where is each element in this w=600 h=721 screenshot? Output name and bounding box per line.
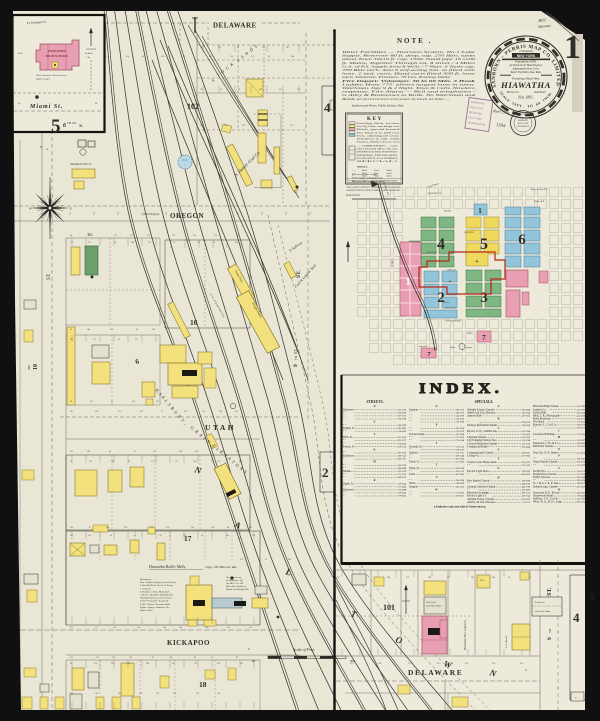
svg-text:B: B (498, 418, 500, 421)
svg-text:186: 186 (95, 693, 98, 695)
svg-text:309: 309 (217, 663, 220, 665)
svg-text:OREGON: OREGON (170, 212, 204, 220)
svg-text:383: 383 (70, 339, 73, 341)
svg-text:" ": " " (343, 476, 346, 479)
svg-text:Windows in side walls: Windows in side walls (357, 139, 400, 141)
svg-text:Nov. 1891.: Nov. 1891. (517, 96, 534, 100)
svg-text:DELAWARE: DELAWARE (213, 22, 257, 30)
svg-text:363: 363 (113, 627, 116, 629)
svg-text:NEW YORK: NEW YORK (517, 54, 536, 58)
svg-text:258: 258 (166, 527, 169, 529)
svg-text:43: 43 (136, 329, 138, 331)
svg-text:Junction: Junction (419, 345, 427, 348)
svg-text:College St.: College St. (467, 455, 480, 458)
svg-text:257: 257 (200, 89, 203, 91)
svg-text:326: 326 (127, 663, 130, 665)
svg-text:R: R (374, 479, 376, 482)
svg-text:Wirts, W. A., & Co., Lum: Wirts, W. A., & Co., Lum (533, 501, 562, 504)
svg-text:56: 56 (70, 401, 72, 403)
svg-text:59: 59 (70, 663, 72, 665)
svg-text:1 In.: 1 In. (86, 57, 91, 59)
svg-text:OPENINGS & SIDE SHUTTERS:: OPENINGS & SIDE SHUTTERS: (357, 152, 399, 154)
svg-text:170: 170 (194, 663, 197, 665)
svg-text:95: 95 (111, 401, 113, 403)
svg-text:308: 308 (179, 451, 182, 453)
svg-text:53: 53 (220, 89, 222, 91)
svg-text:T: T (436, 464, 438, 467)
svg-text:h: h (525, 668, 527, 672)
svg-text:Brown Co.: Brown Co. (507, 90, 520, 94)
svg-text:282: 282 (172, 663, 175, 665)
svg-text:Stone: Stone (374, 170, 379, 172)
svg-text:1: 1 (564, 29, 581, 66)
svg-text:a Indicates only one side of: a Indicates only one side of Street show… (434, 505, 487, 509)
svg-text:54: 54 (213, 242, 215, 244)
svg-text:107: 107 (112, 657, 115, 659)
svg-text:5: 5 (377, 326, 378, 328)
svg-text:76: 76 (70, 461, 72, 463)
svg-text:329: 329 (240, 559, 243, 561)
svg-text:112: 112 (447, 577, 450, 579)
svg-text:STREETS.: STREETS. (366, 400, 383, 404)
svg-text:155: 155 (118, 411, 121, 413)
svg-text:W: W (435, 488, 438, 491)
svg-text:Brick, special hazard: Brick, special hazard (357, 129, 402, 131)
svg-text:ST.: ST. (293, 349, 298, 354)
svg-text:106: 106 (252, 535, 255, 537)
svg-text:73: 73 (134, 451, 136, 453)
svg-text:of feet.: of feet. (466, 346, 473, 349)
svg-text:306: 306 (237, 235, 240, 237)
svg-text:5: 5 (513, 338, 514, 340)
svg-text:5: 5 (389, 218, 390, 220)
svg-text:POTTAWATOMIE: POTTAWATOMIE (444, 320, 462, 323)
svg-text:MIAMI: MIAMI (443, 210, 451, 213)
svg-text:324: 324 (161, 56, 164, 58)
svg-text:" ": " " (343, 495, 346, 498)
svg-text:204: 204 (70, 527, 73, 529)
svg-text:178: 178 (336, 577, 339, 579)
svg-text:252: 252 (251, 56, 254, 58)
svg-text:3: 3 (480, 290, 488, 306)
svg-text:69: 69 (268, 56, 270, 58)
svg-text:344: 344 (288, 559, 291, 561)
svg-text:..: .. (184, 162, 186, 166)
svg-text:175: 175 (70, 242, 73, 244)
svg-text:115: 115 (200, 125, 203, 127)
svg-text:103: 103 (191, 527, 194, 529)
svg-text:Standard Oil Co.: Standard Oil Co. (70, 162, 92, 166)
svg-text:H: H (497, 476, 499, 479)
svg-text:Dwelling, Brick, 1st class: Dwelling, Brick, 1st class (357, 122, 400, 125)
svg-text:" ": " " (533, 427, 536, 430)
svg-text:367: 367 (218, 47, 221, 49)
svg-text:193: 193 (239, 461, 242, 463)
svg-text:SHAWNEE: SHAWNEE (464, 231, 475, 234)
svg-text:Salem Evang. Church: Salem Evang. Church (533, 485, 558, 488)
svg-text:4811: 4811 (538, 17, 547, 23)
svg-text:195: 195 (224, 125, 227, 127)
svg-text:Miami St.: Miami St. (29, 104, 63, 110)
svg-text:365: 365 (193, 235, 196, 237)
svg-text:DELAWARE: DELAWARE (408, 668, 463, 677)
svg-text:Negro Baptist Church: Negro Baptist Church (533, 461, 558, 464)
svg-text:341: 341 (70, 411, 73, 413)
svg-text:" ": " " (467, 473, 470, 476)
svg-text:24: 24 (508, 577, 510, 579)
svg-text:158: 158 (88, 535, 91, 537)
svg-text:Houcks, S., Coal Co.: Houcks, S., Coal Co. (533, 424, 556, 427)
svg-text:+: + (475, 259, 479, 265)
svg-text:123: 123 (236, 451, 239, 453)
svg-text:83: 83 (110, 535, 112, 537)
svg-text:47: 47 (118, 339, 120, 341)
svg-text:HIGH SCHOOL: HIGH SCHOOL (45, 54, 68, 58)
svg-text:(Old Oregon): (Old Oregon) (143, 212, 159, 216)
svg-text:Frames, Shutter doors, iron: Frames, Shutter doors, iron (357, 142, 402, 144)
svg-text:" ": " " (343, 430, 346, 433)
svg-text:ST.: ST. (591, 592, 596, 600)
svg-text:Scale of Feet.: Scale of Feet. (346, 194, 361, 197)
svg-text:Utah: Utah (409, 473, 415, 476)
svg-text:UTAH: UTAH (205, 423, 236, 432)
svg-text:First Baptist Church: First Baptist Church (467, 479, 490, 482)
svg-text:Bbls with a. Regular at: Bbls with a. Regular at (226, 585, 247, 588)
svg-text:46: 46 (142, 56, 144, 58)
svg-text:224: 224 (235, 242, 238, 244)
svg-text:K: K (373, 448, 375, 451)
svg-text:322: 322 (202, 411, 205, 413)
svg-text:170: 170 (172, 235, 175, 237)
svg-text:Commercial Hotel: Commercial Hotel (467, 445, 488, 448)
svg-text:Dwell'g Frame and shingle roof: Dwell'g Frame and shingle roof (357, 125, 400, 128)
svg-text:Wm. Pac. R. R. Depot: Wm. Pac. R. R. Depot (533, 451, 558, 454)
svg-text:388: 388 (428, 577, 431, 579)
svg-text:C: C (498, 427, 500, 430)
svg-text:40 Rods: 40 Rods (85, 53, 93, 55)
svg-text:264: 264 (111, 461, 114, 463)
svg-text:298: 298 (111, 663, 114, 665)
svg-text:Adobe: Adobe (386, 169, 392, 172)
svg-text:5: 5 (572, 242, 573, 244)
svg-text:4: 4 (324, 100, 331, 115)
svg-text:E: E (70, 207, 72, 211)
svg-text:City Wells/ Motor: City Wells/ Motor (426, 605, 442, 608)
svg-text:248: 248 (291, 56, 294, 58)
svg-text:230: 230 (193, 461, 196, 463)
svg-text:332: 332 (153, 451, 156, 453)
svg-text:St.: St. (79, 123, 84, 128)
svg-text:191: 191 (184, 411, 187, 413)
svg-text:16: 16 (190, 318, 198, 327)
svg-text:CONSECUTIVE STRUCTURES AND A: CONSECUTIVE STRUCTURES AND ADJOINING. (346, 189, 402, 192)
svg-text:263: 263 (286, 47, 289, 49)
svg-text:318: 318 (230, 56, 233, 58)
svg-text:21: 21 (161, 411, 163, 413)
svg-text:23: 23 (266, 125, 268, 127)
svg-text:215: 215 (151, 461, 154, 463)
svg-text:10: 10 (211, 657, 213, 659)
svg-text:Mass & Elia R.R.: Mass & Elia R.R. (530, 188, 548, 191)
svg-text:255: 255 (279, 89, 282, 91)
svg-text:KANSAS: KANSAS (534, 90, 546, 94)
svg-text:7: 7 (482, 334, 486, 342)
svg-text:Olath. R.R.: Olath. R.R. (534, 200, 545, 203)
svg-text:196: 196 (139, 693, 142, 695)
svg-text:284: 284 (131, 242, 134, 244)
svg-text:384: 384 (492, 577, 495, 579)
svg-text:305: 305 (195, 451, 198, 453)
svg-text:Bends at occurrences everyone: Bends at occurrences everyone in town at… (342, 97, 451, 101)
svg-text:W: W (29, 207, 32, 211)
svg-text:9: 9 (547, 637, 553, 640)
svg-text:295: 295 (70, 535, 73, 537)
svg-text:213: 213 (227, 627, 230, 629)
svg-text:100': 100' (72, 122, 77, 125)
svg-text:302: 302 (226, 535, 229, 537)
svg-text:129: 129 (150, 527, 153, 529)
svg-text:275: 275 (90, 401, 93, 403)
svg-text:384: 384 (152, 329, 155, 331)
svg-text:366: 366 (110, 329, 113, 331)
svg-text:INDEX.: INDEX. (419, 381, 503, 397)
svg-text:Prevailing Winds West.: Prevailing Winds West. (511, 77, 540, 81)
svg-text:195: 195 (240, 663, 243, 665)
svg-text:R.H.: R.H. (480, 580, 485, 582)
svg-text:10: 10 (265, 559, 267, 561)
svg-text:" ": " " (409, 495, 412, 498)
svg-text:STANDARD Pl. & 1st SYMBOLS: STANDARD Pl. & 1st SYMBOLS (357, 157, 399, 160)
svg-text:5: 5 (449, 326, 450, 328)
svg-text:city Mills - 5 h. 100: city Mills - 5 h. 100 (226, 582, 244, 585)
svg-text:10: 10 (33, 364, 39, 370)
svg-text:SPECIAL!: SPECIAL! (357, 160, 399, 163)
svg-text:TH: TH (27, 365, 31, 370)
svg-text:322: 322 (70, 627, 73, 629)
svg-text:" ": " " (533, 464, 536, 467)
svg-text:Adobe: Adobe (386, 175, 392, 178)
svg-text:A: A (498, 405, 500, 408)
svg-text:+: + (449, 280, 452, 285)
svg-text:62: 62 (201, 535, 203, 537)
svg-text:— ‘COMPOSITION’ .... roofs: — ‘COMPOSITION’ .... roofs (355, 145, 398, 148)
svg-text:225: 225 (114, 235, 117, 237)
svg-text:162: 162 (290, 125, 293, 127)
svg-text:283: 283 (249, 527, 252, 529)
svg-text:137: 137 (200, 47, 203, 49)
svg-text:70: 70 (134, 535, 136, 537)
svg-text:12TH ST: 12TH ST (391, 257, 394, 267)
svg-text:Fourth, N.: Fourth, N. (343, 445, 355, 448)
svg-text:(Above F.) Stable: (Above F.) Stable (535, 610, 550, 613)
svg-text:213: 213 (89, 461, 92, 463)
svg-text:Sanborn and Perris. Public Lib: Sanborn and Perris. Public Library. Note… (352, 104, 404, 108)
svg-text:18: 18 (199, 680, 207, 689)
svg-text:114: 114 (217, 693, 220, 695)
svg-text:E: E (498, 448, 500, 451)
svg-text:5: 5 (473, 190, 474, 192)
svg-text:Lights: Lamps.: Lights: Lamps. (35, 78, 51, 81)
svg-text:45: 45 (70, 329, 72, 331)
svg-text:34: 34 (114, 242, 116, 244)
svg-text:HIAWATHA: HIAWATHA (500, 81, 551, 90)
svg-text:36: 36 (194, 657, 196, 659)
svg-text:163: 163 (262, 47, 265, 49)
svg-text:CONGRESS: CONGRESS (517, 126, 530, 128)
svg-text:359: 359 (183, 535, 186, 537)
svg-text:167: 167 (159, 535, 162, 537)
svg-text:5: 5 (365, 194, 366, 196)
svg-text:5: 5 (365, 290, 366, 292)
svg-text:Fire Wall, 8 in. pltd roof: Fire Wall, 8 in. pltd roof (357, 131, 401, 134)
svg-text:no Mechanics. Adj.: no Mechanics. Adj. (226, 579, 243, 582)
svg-text:" ": " " (409, 421, 412, 424)
svg-text:Scale: Scale (450, 346, 455, 349)
svg-text:272: 272 (135, 339, 138, 341)
svg-text:87: 87 (236, 657, 238, 659)
svg-text:102: 102 (187, 102, 199, 111)
svg-text:87: 87 (91, 235, 93, 237)
svg-text:ST.: ST. (46, 273, 52, 280)
svg-text:" ": " " (467, 464, 470, 467)
svg-text:21 Broadway: 21 Broadway (519, 50, 534, 53)
svg-text:Armory Hall: Armory Hall (467, 415, 481, 418)
svg-text:Has two runs sup.: Has two runs sup. (225, 576, 242, 579)
svg-text:184: 184 (169, 657, 172, 659)
svg-text:51: 51 (237, 47, 239, 49)
svg-text:212: 212 (88, 242, 91, 244)
svg-text:G: G (497, 467, 499, 470)
svg-text:UTAH: UTAH (443, 301, 449, 304)
svg-text:152: 152 (175, 461, 178, 463)
svg-text:4: 4 (573, 610, 580, 625)
svg-text:B.P.: B.P. (294, 192, 298, 194)
svg-text:211: 211 (249, 627, 252, 629)
svg-text:109: 109 (70, 693, 73, 695)
svg-text:154: 154 (211, 527, 214, 529)
svg-text:287: 287 (156, 401, 159, 403)
svg-text:County Court House and J: County Court House and J (467, 461, 497, 464)
svg-text:173: 173 (95, 627, 98, 629)
svg-text:40: 40 (109, 451, 111, 453)
svg-text:139: 139 (209, 56, 212, 58)
svg-text:D: D (374, 405, 376, 408)
svg-text:DWELLS.: DWELLS. (357, 166, 368, 169)
svg-text:shed both directions: shed both directions (357, 149, 398, 151)
svg-text:O: O (435, 405, 437, 408)
svg-text:Capy. 100 Bbls per day.: Capy. 100 Bbls per day. (205, 565, 238, 569)
svg-text:116: 116 (129, 657, 132, 659)
svg-text:Tenth, N.: Tenth, N. (409, 461, 420, 464)
svg-text:Population 4000.: Population 4000. (514, 60, 537, 64)
svg-text:352: 352 (140, 411, 143, 413)
svg-text:KICKAPOO: KICKAPOO (444, 307, 456, 310)
svg-text:5: 5 (533, 362, 534, 364)
svg-text:40 R: 40 R (18, 52, 23, 55)
svg-text:356: 356 (163, 627, 166, 629)
svg-text:5: 5 (560, 290, 561, 292)
svg-text:SHAWNEE ST: SHAWNEE ST (428, 192, 442, 195)
svg-text:E: E (374, 421, 376, 424)
svg-text:TH: TH (548, 628, 552, 633)
svg-text:Water Facilities Doz. Rept.: Water Facilities Doz. Rept. (510, 70, 542, 74)
svg-text:" ": " " (409, 439, 412, 442)
svg-text:5: 5 (521, 194, 522, 196)
svg-text:87: 87 (89, 527, 91, 529)
svg-text:4: 4 (437, 236, 445, 253)
svg-text:119: 119 (197, 242, 200, 244)
svg-text:363: 363 (242, 125, 245, 127)
svg-text:295: 295 (147, 235, 150, 237)
svg-text:L. H. Rhodes: L. H. Rhodes (505, 635, 508, 649)
svg-text:197: 197 (148, 242, 151, 244)
svg-text:213: 213 (220, 451, 223, 453)
svg-text:Adobe: Adobe (386, 172, 392, 175)
svg-text:132: 132 (406, 577, 409, 579)
svg-text:9: 9 (293, 364, 299, 367)
svg-text:L: L (558, 430, 560, 433)
svg-text:358: 358 (95, 411, 98, 413)
svg-text:39: 39 (173, 242, 175, 244)
svg-text:Hiawatha Elec. Light Co.: Hiawatha Elec. Light Co. (463, 619, 467, 651)
svg-text:1: 1 (478, 207, 482, 215)
svg-text:326: 326 (137, 627, 140, 629)
svg-text:U: U (436, 476, 438, 479)
svg-text:389: 389 (259, 89, 262, 91)
svg-text:6: 6 (518, 232, 526, 248)
svg-text:94: 94 (70, 235, 72, 237)
svg-text:Elevation above sea. Consecuti: Elevation above sea. Consecutive. (352, 180, 385, 183)
svg-text:Pt.: Pt. (17, 102, 21, 105)
svg-text:Ice House: Ice House (534, 601, 545, 604)
svg-text:6: 6 (63, 123, 66, 129)
svg-text:126: 126 (173, 693, 176, 695)
svg-text:2: 2 (322, 465, 329, 480)
svg-text:NOTE .: NOTE . (397, 37, 432, 45)
svg-text:Pt.: Pt. (45, 148, 49, 151)
svg-text:Pt.: Pt. (94, 102, 98, 105)
svg-text:100: 100 (106, 527, 109, 529)
svg-text:Turb. Coal.: Turb. Coal. (426, 602, 436, 604)
svg-text:296: 296 (205, 627, 208, 629)
svg-text:262: 262 (219, 411, 222, 413)
svg-text:352: 352 (130, 235, 133, 237)
svg-text:5: 5 (51, 116, 61, 137)
svg-text:5: 5 (413, 194, 414, 196)
svg-text:America & Son, Elevator: America & Son, Elevator (467, 501, 495, 504)
svg-text:5: 5 (545, 254, 546, 256)
svg-text:KICKAPOO: KICKAPOO (167, 639, 210, 647)
svg-text:380: 380 (118, 693, 121, 695)
svg-text:NOV 2 1891: NOV 2 1891 (518, 123, 529, 125)
svg-text:ST.: ST. (547, 587, 553, 596)
svg-text:Brown, G. W., Lumber Co.: Brown, G. W., Lumber Co. (467, 430, 497, 433)
svg-text:5: 5 (389, 254, 390, 256)
svg-text:152: 152 (217, 461, 220, 463)
svg-text:157: 157 (93, 339, 96, 341)
svg-text:398: 398 (387, 577, 390, 579)
svg-text:86: 86 (183, 56, 185, 58)
svg-text:93: 93 (152, 657, 154, 659)
svg-text:N: N (558, 448, 560, 451)
svg-text:Lawrence Building: Lawrence Building (533, 433, 555, 436)
svg-text:262: 262 (471, 577, 474, 579)
svg-text:Methodist Church: Methodist Church (533, 445, 554, 448)
svg-text:121: 121 (235, 411, 238, 413)
svg-text:122: 122 (156, 693, 159, 695)
svg-text:OREGON: OREGON (447, 270, 456, 272)
svg-text:314: 314 (214, 235, 217, 237)
